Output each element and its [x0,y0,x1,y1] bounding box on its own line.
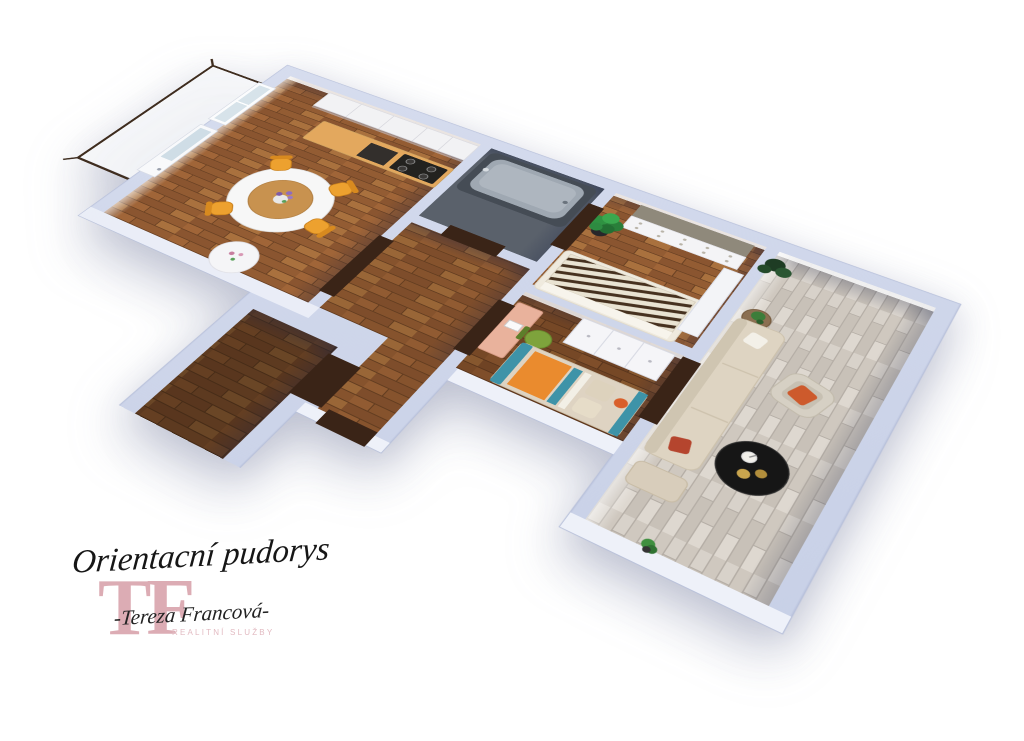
branding-signature: TF Orientacní pudorys -Tereza Francová- … [64,538,364,668]
plan-title: Orientacní pudorys [71,531,331,582]
dining-chair [269,155,293,170]
floor-plan-render-canvas: TF Orientacní pudorys -Tereza Francová- … [0,0,1024,682]
dining-chair [204,201,233,216]
agent-subtitle: REALITNÍ SLUŽBY [172,628,274,637]
